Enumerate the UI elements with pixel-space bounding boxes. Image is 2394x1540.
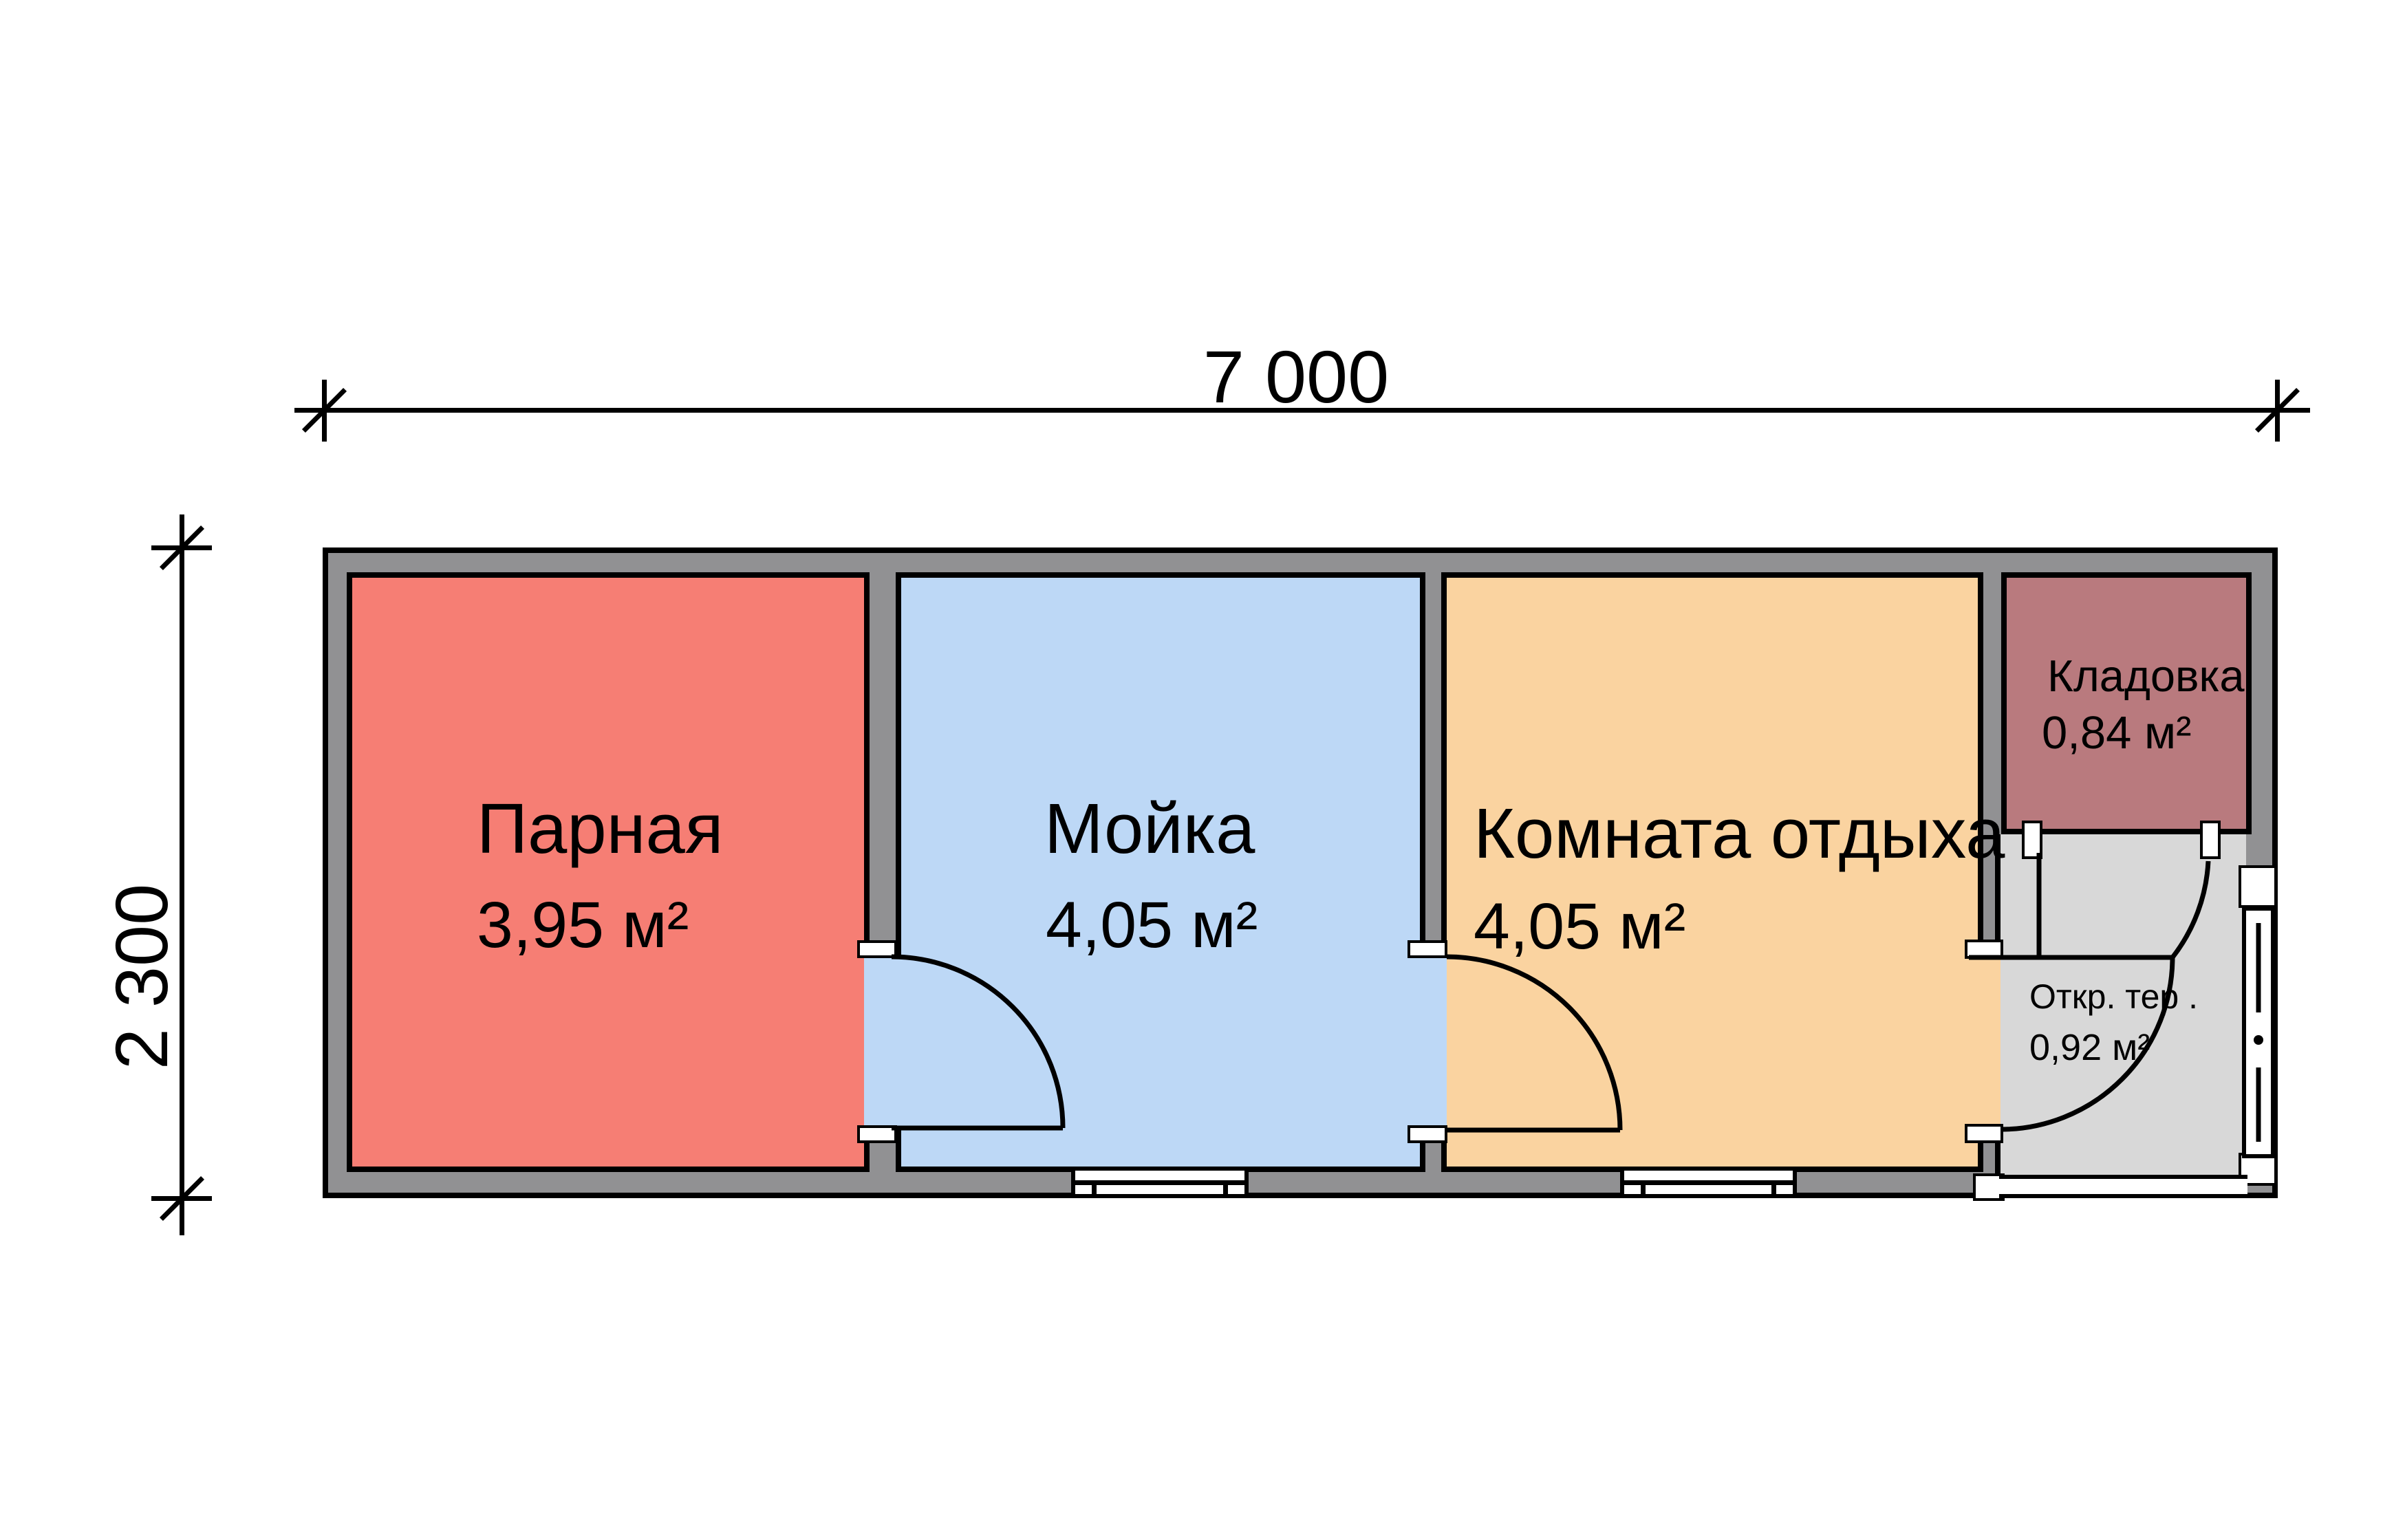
label-parnaya-name: Парная bbox=[477, 793, 724, 864]
jamb-kt-top bbox=[1965, 940, 2003, 959]
jamb-pm-bottom bbox=[857, 1125, 897, 1143]
doorway-moyka-komnata bbox=[1420, 955, 1447, 1130]
label-kladovka-name: Кладовка bbox=[2047, 653, 2245, 698]
jamb-terrace-window-top bbox=[2239, 865, 2277, 908]
jamb-kt-bottom bbox=[1965, 1124, 2003, 1143]
jamb-mk-top bbox=[1408, 940, 1447, 958]
jamb-kladovka-left bbox=[2022, 821, 2042, 859]
window-moyka bbox=[1071, 1167, 1249, 1198]
label-moyka-area: 4,05 м² bbox=[1046, 893, 1258, 958]
label-terrace-name: Откр. тер . bbox=[2029, 979, 2198, 1014]
dim-width-label: 7 000 bbox=[1203, 340, 1389, 414]
room-kladovka bbox=[2001, 572, 2252, 834]
room-parnaya bbox=[347, 572, 870, 1172]
jamb-mk-bottom bbox=[1408, 1125, 1447, 1143]
label-komnata-name: Комната отдыха bbox=[1474, 798, 2005, 869]
doorway-parnaya-moyka bbox=[864, 955, 901, 1128]
room-moyka bbox=[896, 572, 1425, 1172]
floor-plan: 7 000 2 300 Парная 3,95 м² Мойка 4,05 bbox=[0, 0, 2394, 1540]
window-terrace-right bbox=[2242, 907, 2275, 1158]
jamb-pm-top bbox=[857, 940, 897, 958]
window-komnata bbox=[1620, 1167, 1797, 1198]
dim-height-label: 2 300 bbox=[105, 884, 179, 1070]
label-parnaya-area: 3,95 м² bbox=[477, 893, 689, 958]
label-komnata-area: 4,05 м² bbox=[1474, 894, 1685, 959]
label-kladovka-area: 0,84 м² bbox=[2042, 710, 2191, 756]
jamb-kladovka-right bbox=[2200, 821, 2221, 859]
dim-height-line bbox=[180, 514, 184, 1235]
room-terrace bbox=[1995, 834, 2246, 1198]
label-terrace-area: 0,92 м² bbox=[2029, 1029, 2150, 1066]
label-moyka-name: Мойка bbox=[1044, 793, 1255, 864]
doorway-komnata-terrace bbox=[1978, 957, 2001, 1127]
terrace-open-edge bbox=[1999, 1175, 2247, 1198]
